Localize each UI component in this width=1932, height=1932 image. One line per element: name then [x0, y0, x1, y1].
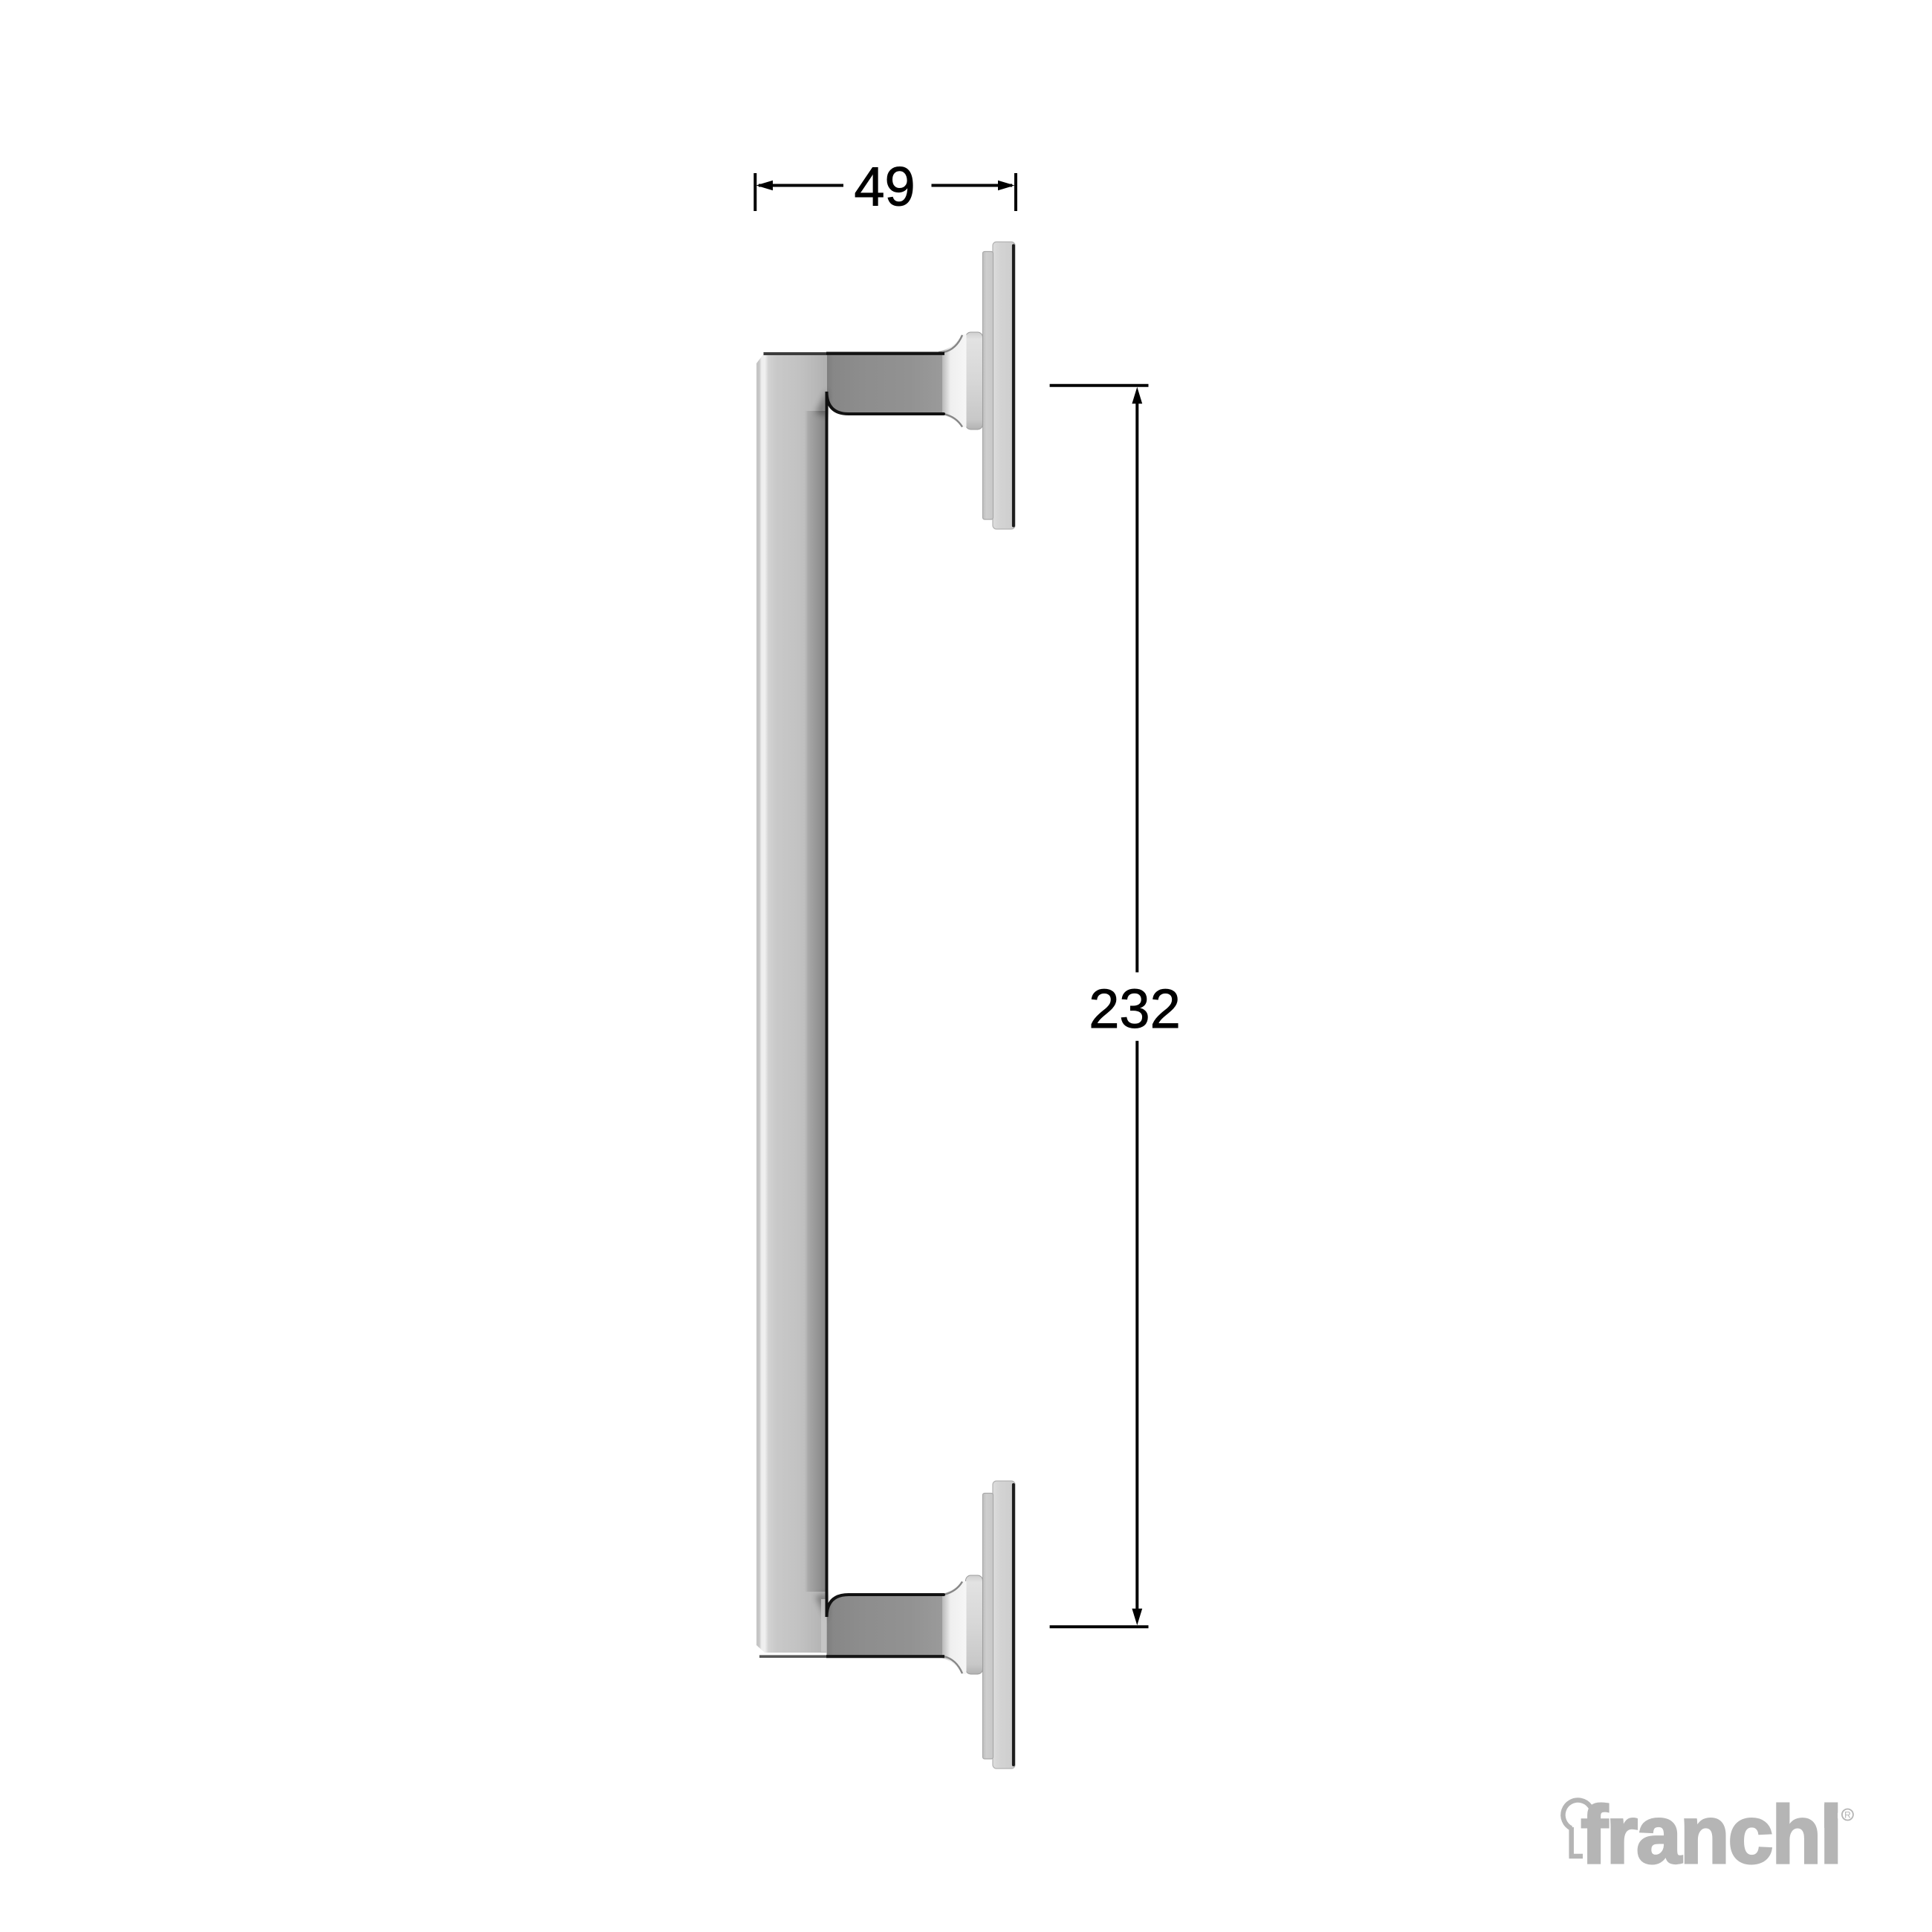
svg-text:49: 49 [854, 156, 915, 218]
svg-text:R: R [1844, 1810, 1851, 1821]
svg-text:franchi: franchi [1581, 1789, 1841, 1881]
svg-text:232: 232 [1089, 978, 1180, 1040]
